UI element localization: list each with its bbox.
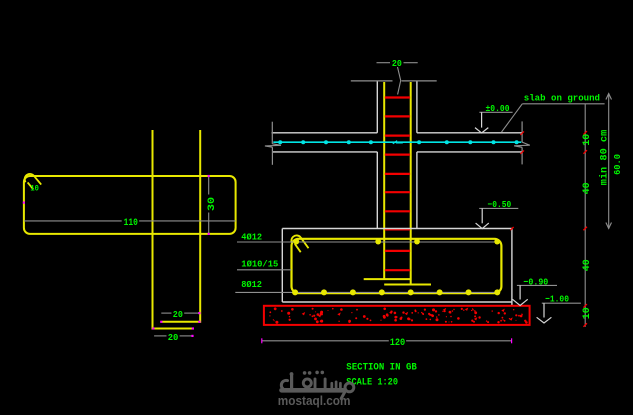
svg-text:10: 10 — [30, 184, 39, 194]
svg-text:30: 30 — [206, 197, 218, 211]
svg-text:1Ø10/15: 1Ø10/15 — [241, 259, 278, 270]
svg-text:40: 40 — [582, 182, 593, 194]
svg-text:60.0: 60.0 — [612, 154, 623, 175]
svg-text:4Ø12: 4Ø12 — [241, 231, 262, 242]
svg-text:20: 20 — [392, 58, 402, 69]
svg-text:8Ø12: 8Ø12 — [241, 279, 262, 290]
svg-text:120: 120 — [390, 337, 406, 349]
svg-text:SECTION IN GB: SECTION IN GB — [346, 362, 417, 373]
svg-text:10: 10 — [582, 307, 593, 319]
svg-text:mostaql.com: mostaql.com — [278, 394, 351, 408]
svg-text:10: 10 — [582, 134, 593, 146]
svg-text:20: 20 — [168, 332, 179, 343]
svg-text:110: 110 — [124, 217, 138, 229]
svg-text:40: 40 — [582, 259, 593, 271]
svg-text:20: 20 — [173, 309, 183, 320]
svg-text:min 80 cm: min 80 cm — [599, 130, 611, 186]
svg-text:slab on ground: slab on ground — [524, 93, 600, 104]
